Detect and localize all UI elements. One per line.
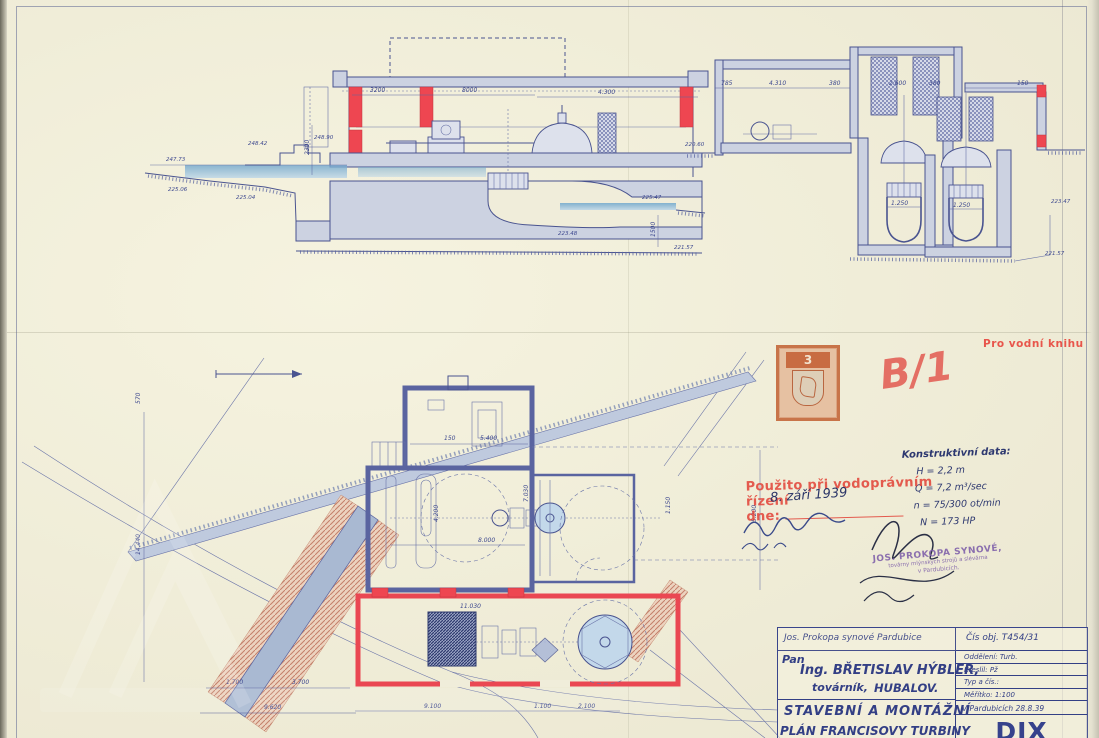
firm-name: Jos. Prokopa synové Pardubice (778, 628, 956, 651)
dim-label: 8.000 (478, 537, 495, 544)
dim-label: 380 (829, 80, 841, 87)
dim-label: 11.030 (460, 603, 481, 610)
ground-lines (685, 150, 1085, 261)
building-plan (368, 376, 660, 590)
client-place: HUBALOV. (874, 681, 938, 695)
dim-label: 3200 (370, 87, 385, 94)
dim-label: 785 (721, 80, 733, 87)
elevation-label: 223.48 (558, 231, 578, 237)
substructure-and-draft-tube (296, 109, 702, 241)
scale-row: Měřítko: 1:100 (956, 689, 1087, 702)
elevation-label: 225.04 (236, 195, 256, 201)
dim-label: 5.400 (480, 435, 497, 442)
dim-label: 570 (135, 392, 142, 404)
dim-label: 2.600 (889, 80, 906, 87)
drawing-title-line2: PLÁN FRANCISOVY TURBINY (780, 724, 970, 738)
coat-of-arms-shield (792, 370, 824, 406)
water-book-note: Pro vodní knihu (983, 338, 1084, 350)
dim-label: 2300 (304, 140, 311, 155)
elevation-label: 248.42 (248, 141, 268, 147)
signature-ink-blue (740, 505, 850, 565)
elevation-label: 223.47 (1051, 199, 1071, 205)
dim-label: 380 (929, 80, 941, 87)
drawing-number: DIX 2006 (956, 715, 1087, 738)
dim-label: 150 (1017, 80, 1029, 87)
type-row: Typ a čís.: (956, 676, 1087, 689)
longitudinal-section-drawing: 3200 8000 4.300 2300 1500 247.73 248.42 … (90, 25, 705, 280)
scan-edge-left (0, 0, 7, 738)
scanned-blueprint-sheet: 3200 8000 4.300 2300 1500 247.73 248.42 … (0, 0, 1099, 738)
cross-section-drawing: 1.250 1.250 (685, 35, 1085, 270)
turbine-runner (488, 109, 528, 189)
revenue-stamp: 3 (776, 345, 840, 421)
annex (715, 60, 851, 155)
center-turbine-block: 1.250 (850, 47, 962, 255)
new-turbine-house-plan (358, 588, 678, 687)
drawing-title-line1: STAVEBNÍ A MONTÁŽNÍ (784, 704, 971, 719)
elevation-label: 225.06 (168, 187, 188, 193)
client-role: továrník, (812, 681, 868, 694)
dim-label: 1.250 (891, 200, 908, 207)
horizontal-crease (0, 332, 1099, 333)
title-block: Jos. Prokopa synové Pardubice Čís obj. T… (777, 627, 1088, 738)
drawing-title-cell: STAVEBNÍ A MONTÁŽNÍ PLÁN FRANCISOVY TURB… (778, 700, 956, 738)
elevation-label: 220.60 (685, 142, 705, 148)
scan-edge-right (1087, 0, 1099, 738)
client-name: Ing. BŘETISLAV HÝBLER, (800, 663, 979, 678)
elevation-labels: 220.60 223.47 221.57 (685, 142, 1071, 257)
archive-watermark (45, 455, 305, 715)
elevation-label: 247.73 (166, 157, 186, 163)
dim-label: 1500 (650, 222, 657, 237)
dim-label: 8000 (462, 87, 477, 94)
dim-label: 7.030 (523, 485, 530, 502)
elevation-label: 221.57 (1045, 251, 1065, 257)
elevation-label: 225.47 (642, 195, 662, 201)
drawn-row: Kreslil: Pž (956, 664, 1087, 677)
elevation-label: 248.90 (314, 135, 334, 141)
place-date: V Pardubicích 28.8.39 (956, 701, 1087, 715)
revenue-stamp-value: 3 (786, 352, 830, 368)
dim-label: 4.200 (433, 505, 440, 522)
order-number: Čís obj. T454/31 (956, 628, 1087, 651)
north-arrow (216, 370, 302, 378)
archive-watermark-band (40, 688, 680, 712)
dim-label: 4.300 (598, 89, 615, 96)
dim-label: 4.310 (769, 80, 786, 87)
dim-label: 1.250 (953, 202, 970, 209)
client-cell: Pan Ing. BŘETISLAV HÝBLER, továrník, HUB… (778, 651, 956, 700)
dept-row: Oddělení: Turb. (956, 651, 1087, 664)
dim-label: 1.150 (665, 497, 672, 514)
upstream-weir (245, 87, 328, 165)
dim-label: 150 (444, 435, 456, 442)
